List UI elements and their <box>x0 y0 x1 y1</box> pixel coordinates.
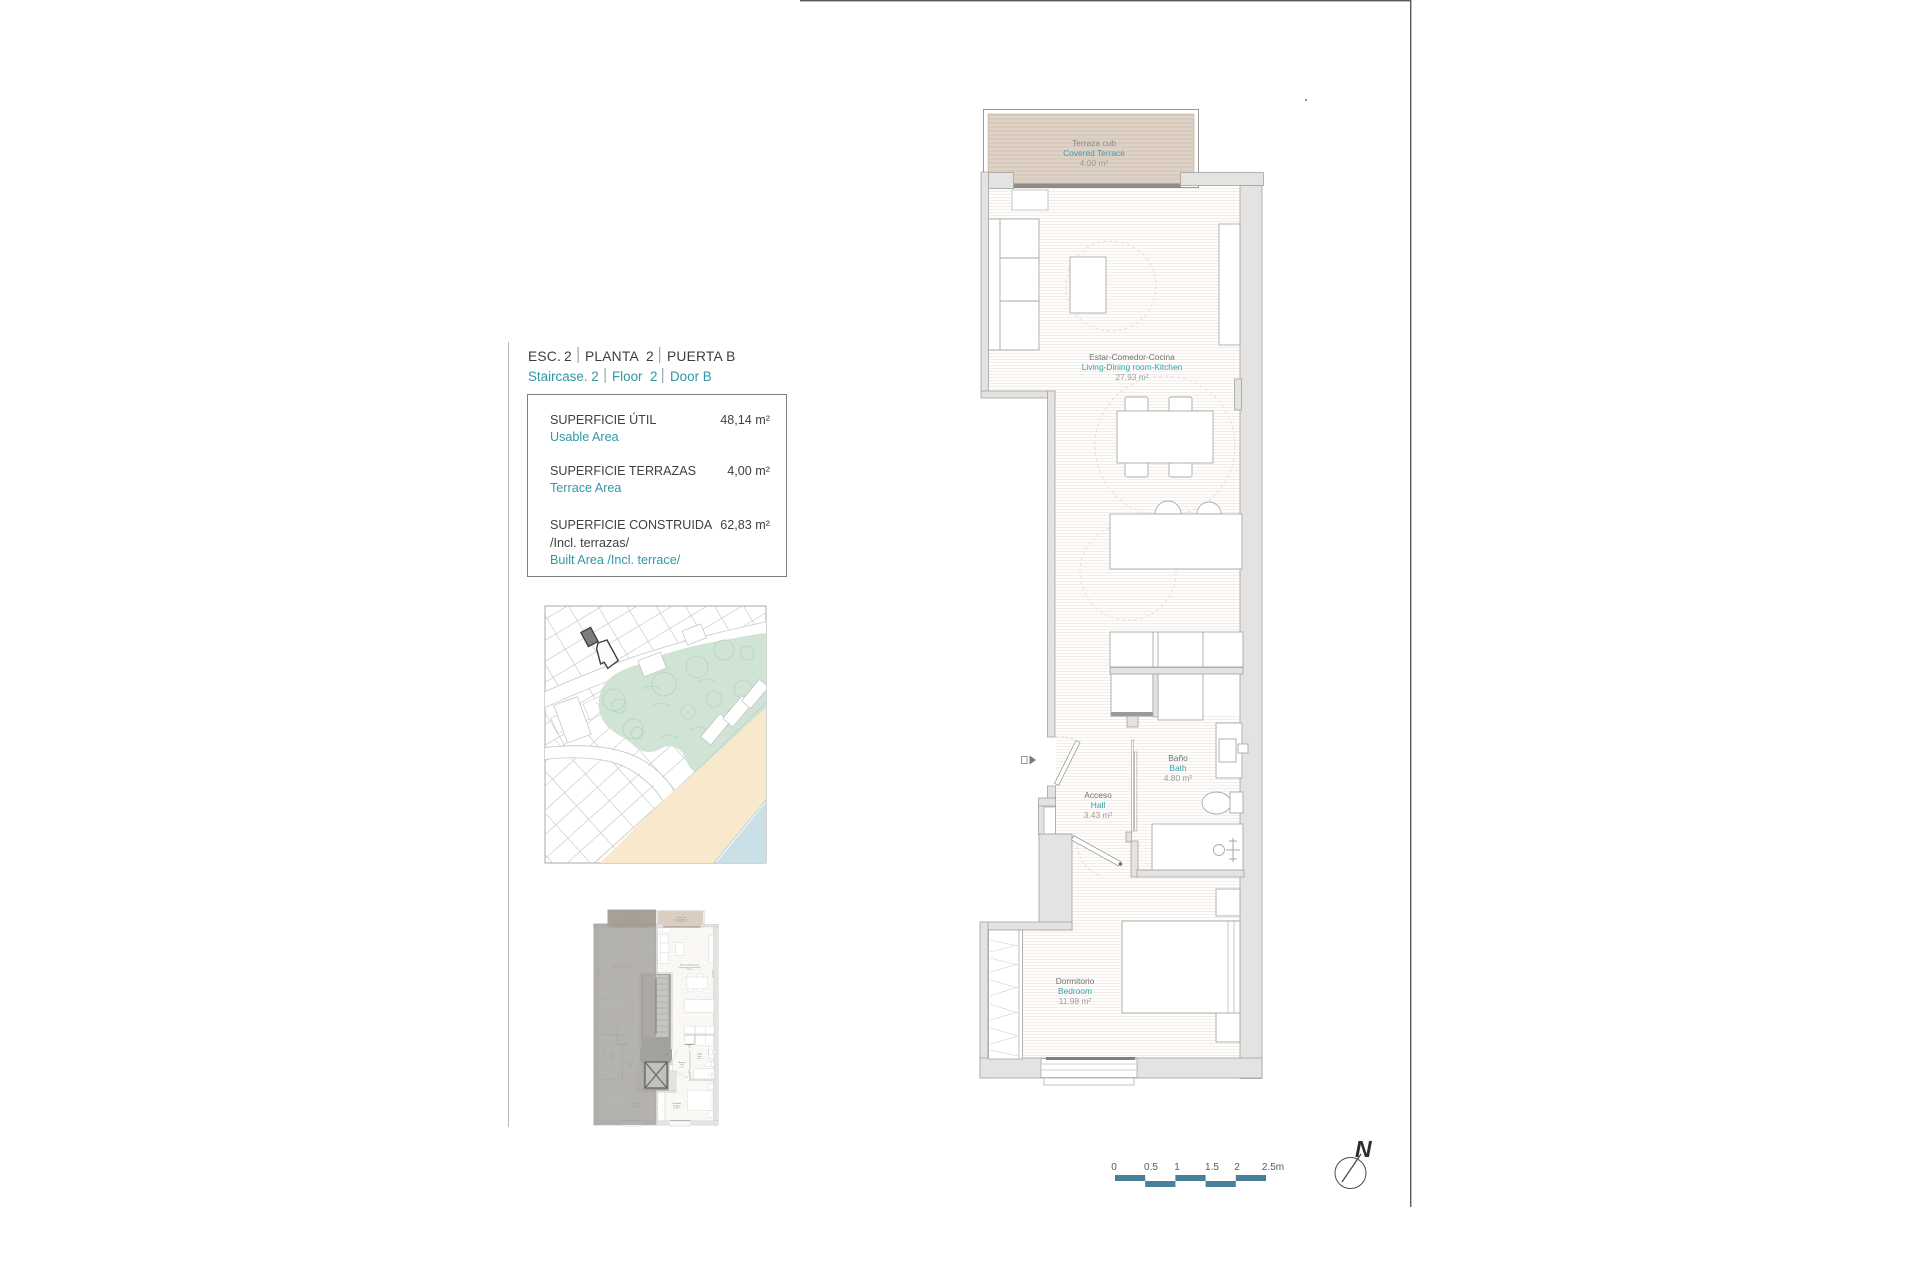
svg-text:Bath: Bath <box>1169 763 1187 773</box>
svg-text:2.5m: 2.5m <box>1262 1162 1284 1173</box>
svg-text:Bedroom: Bedroom <box>1058 986 1092 996</box>
svg-text:4.00 m²: 4.00 m² <box>1080 158 1109 168</box>
svg-text:PLANTA: PLANTA <box>585 349 639 364</box>
svg-text:Built Area /Incl. terrace/: Built Area /Incl. terrace/ <box>550 553 681 567</box>
svg-text:27.93 m²: 27.93 m² <box>1115 372 1148 382</box>
svg-text:62,83 m²: 62,83 m² <box>720 518 770 532</box>
svg-text:Dormitorio: Dormitorio <box>1056 976 1095 986</box>
svg-text:Baño: Baño <box>1168 753 1188 763</box>
svg-text:/Incl. terrazas/: /Incl. terrazas/ <box>550 536 630 550</box>
svg-text:SUPERFICIE TERRAZAS: SUPERFICIE TERRAZAS <box>550 464 696 478</box>
svg-text:Hall: Hall <box>1091 800 1106 810</box>
svg-text:N: N <box>1355 1136 1372 1162</box>
svg-text:0: 0 <box>1111 1162 1117 1173</box>
svg-text:Usable Area: Usable Area <box>550 430 619 444</box>
svg-text:4.80 m²: 4.80 m² <box>1164 773 1193 783</box>
svg-text:3.43 m²: 3.43 m² <box>1084 810 1113 820</box>
svg-text:48,14 m²: 48,14 m² <box>720 413 770 427</box>
svg-text:PUERTA B: PUERTA B <box>667 349 736 364</box>
svg-text:ESC.: ESC. <box>528 349 561 364</box>
svg-text:SUPERFICIE CONSTRUIDA: SUPERFICIE CONSTRUIDA <box>550 518 713 532</box>
svg-text:Door B: Door B <box>670 369 712 384</box>
svg-text:4,00 m²: 4,00 m² <box>727 464 770 478</box>
svg-text:Terrace Area: Terrace Area <box>550 481 621 495</box>
svg-text:2: 2 <box>1234 1162 1240 1173</box>
svg-text:Living-Dining room-Kitchen: Living-Dining room-Kitchen <box>1082 362 1183 372</box>
svg-text:2: 2 <box>564 349 572 364</box>
svg-text:SUPERFICIE ÚTIL: SUPERFICIE ÚTIL <box>550 412 656 427</box>
svg-text:Acceso: Acceso <box>1084 790 1112 800</box>
svg-text:2: 2 <box>646 349 654 364</box>
svg-text:Terraza cub: Terraza cub <box>1072 138 1116 148</box>
svg-text:1.5: 1.5 <box>1205 1162 1219 1173</box>
svg-text:Floor: Floor <box>612 369 643 384</box>
svg-text:11.98 m²: 11.98 m² <box>1059 996 1092 1006</box>
svg-text:0.5: 0.5 <box>1144 1162 1158 1173</box>
svg-text:Covered Terrace: Covered Terrace <box>1063 148 1125 158</box>
svg-text:Estar-Comedor-Cocina: Estar-Comedor-Cocina <box>1089 352 1175 362</box>
svg-text:2: 2 <box>650 369 657 384</box>
svg-text:Staircase. 2: Staircase. 2 <box>528 369 599 384</box>
svg-text:1: 1 <box>1174 1162 1180 1173</box>
